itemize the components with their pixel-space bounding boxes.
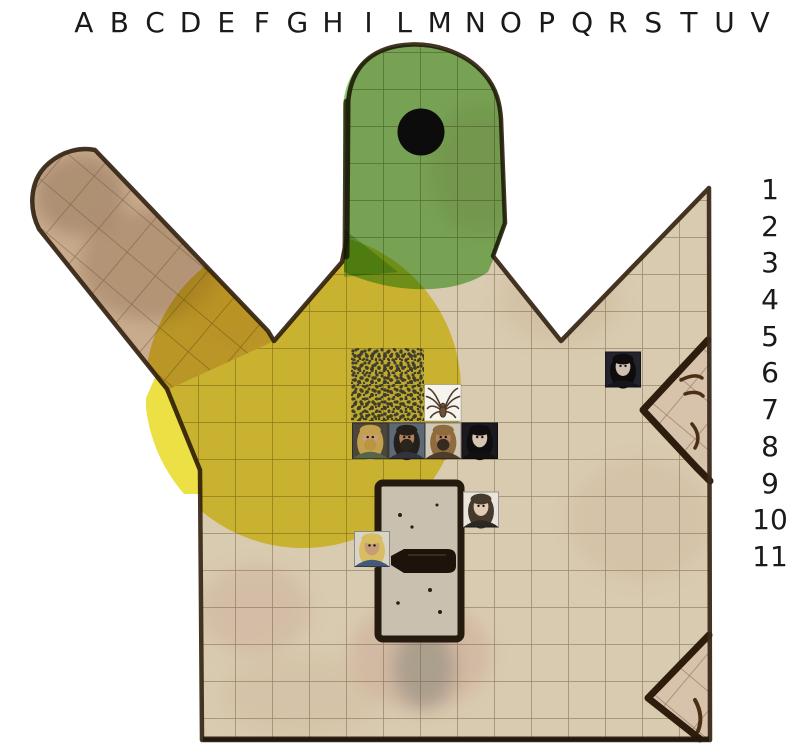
column-label: U xyxy=(707,6,743,39)
column-label: P xyxy=(529,6,565,39)
portrait-pale-woman-right[interactable] xyxy=(605,352,641,389)
column-label: S xyxy=(636,6,672,39)
row-label: 6 xyxy=(744,355,796,392)
column-label: E xyxy=(208,6,244,39)
column-label: R xyxy=(600,6,636,39)
row-label: 7 xyxy=(744,392,796,429)
row-label: 4 xyxy=(744,282,796,319)
row-label: 2 xyxy=(744,209,796,246)
column-label: F xyxy=(244,6,280,39)
column-label: N xyxy=(458,6,494,39)
column-label: H xyxy=(315,6,351,39)
column-label: B xyxy=(102,6,138,39)
row-labels: 1234567891011 xyxy=(744,172,796,576)
column-label: I xyxy=(351,6,387,39)
row-label: 5 xyxy=(744,319,796,356)
swarm-dots xyxy=(351,348,424,421)
row-label: 10 xyxy=(744,502,796,539)
column-labels: ABCDEFGHILMNOPQRSTUV xyxy=(66,4,778,40)
portrait-blond-bearded-man[interactable] xyxy=(352,423,389,461)
column-label: Q xyxy=(564,6,600,39)
pit-hole xyxy=(398,109,445,156)
door-handle xyxy=(391,549,456,573)
column-label: T xyxy=(671,6,707,39)
column-label: G xyxy=(280,6,316,39)
column-label: L xyxy=(386,6,422,39)
portrait-helmed-dwarf[interactable] xyxy=(425,423,462,461)
row-label: 9 xyxy=(744,466,796,503)
column-label: M xyxy=(422,6,458,39)
column-label: V xyxy=(742,6,778,39)
spider-token[interactable] xyxy=(425,385,462,422)
column-label: O xyxy=(493,6,529,39)
portrait-dark-haired-man[interactable] xyxy=(389,423,426,461)
row-label: 3 xyxy=(744,245,796,282)
portrait-blond-warrior[interactable] xyxy=(354,531,390,568)
portrait-elf-woman[interactable] xyxy=(463,492,499,529)
vtt-battle-map-screenshot: ABCDEFGHILMNOPQRSTUV 1234567891011 xyxy=(0,0,801,750)
row-label: 8 xyxy=(744,429,796,466)
battle-map[interactable] xyxy=(0,0,801,750)
portrait-pale-woman[interactable] xyxy=(462,423,499,461)
column-label: A xyxy=(66,6,102,39)
row-label: 11 xyxy=(744,539,796,576)
column-label: C xyxy=(137,6,173,39)
row-label: 1 xyxy=(744,172,796,209)
spider-swarm-token[interactable] xyxy=(351,348,424,421)
column-label: D xyxy=(173,6,209,39)
